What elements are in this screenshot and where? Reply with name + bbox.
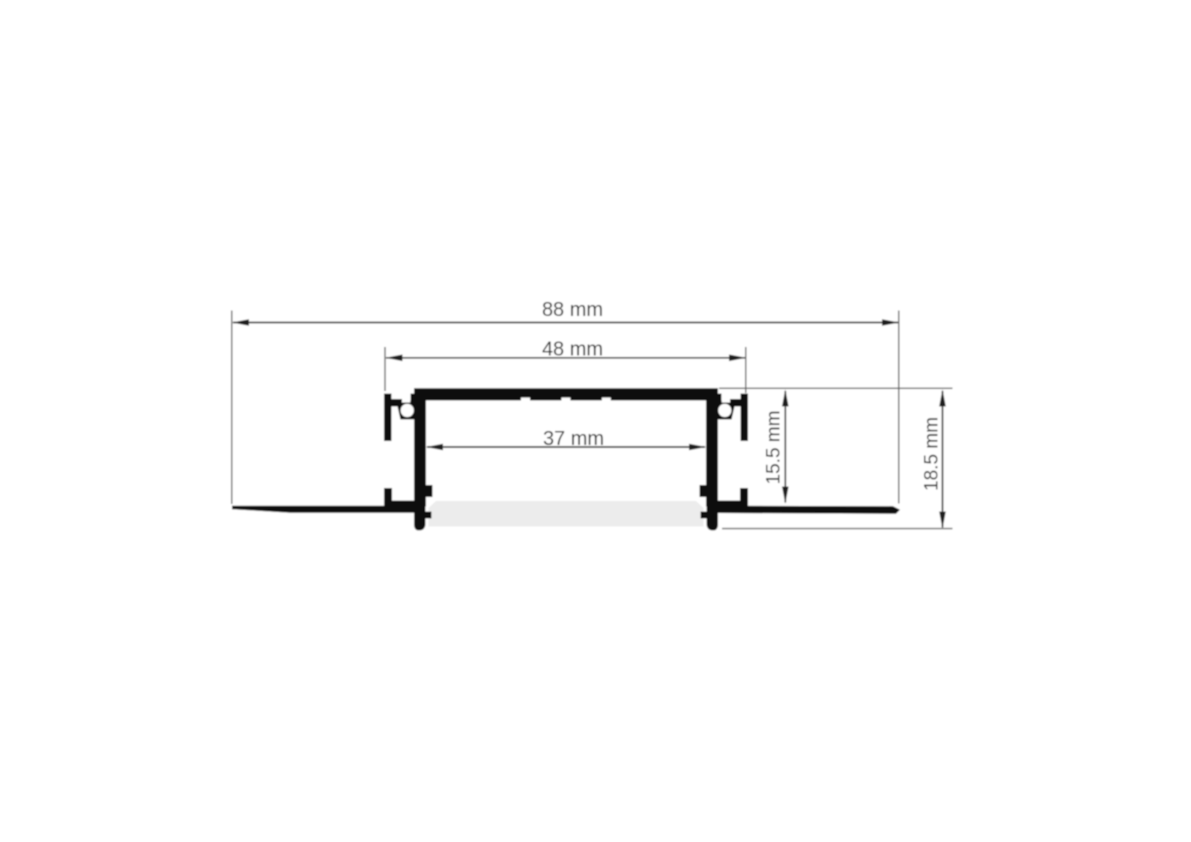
svg-text:15.5 mm: 15.5 mm xyxy=(764,411,785,485)
svg-text:88 mm: 88 mm xyxy=(542,299,603,321)
svg-text:37 mm: 37 mm xyxy=(543,428,604,450)
svg-text:48 mm: 48 mm xyxy=(542,338,603,360)
svg-text:18.5 mm: 18.5 mm xyxy=(922,417,943,491)
